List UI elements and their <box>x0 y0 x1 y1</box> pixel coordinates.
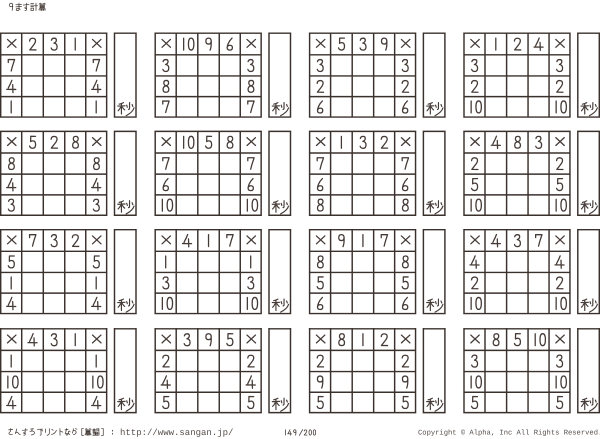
svg-text:Copyright © Alpha, Inc All Rig: Copyright © Alpha, Inc All Rights Reserv… <box>418 428 600 437</box>
svg-text:http://www.sangan.jp/: http://www.sangan.jp/ <box>120 428 233 438</box>
